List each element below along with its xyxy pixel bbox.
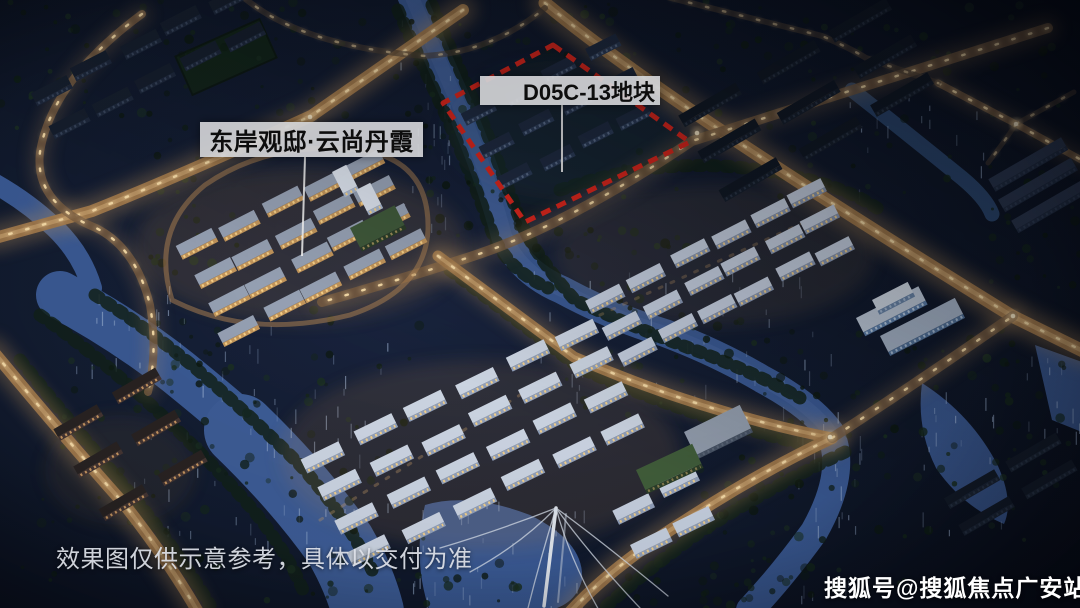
watermark-text: 搜狐号@搜狐焦点广安站 (824, 569, 1080, 603)
parcel-label: D05C-13地块 (480, 76, 660, 105)
project-name-label: 东岸观邸·云尚丹霞 (200, 122, 423, 157)
disclaimer-text: 效果图仅供示意参考，具体以交付为准 (56, 539, 473, 574)
night-aerial-rendering: 东岸观邸·云尚丹霞 D05C-13地块 效果图仅供示意参考，具体以交付为准 搜狐… (0, 0, 1080, 608)
